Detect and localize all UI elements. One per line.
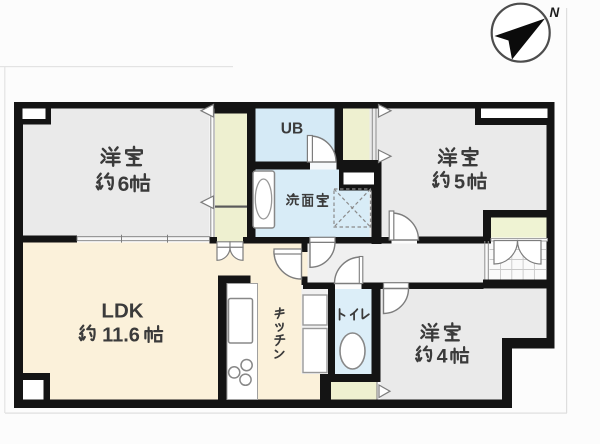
svg-text:N: N <box>550 5 560 20</box>
svg-text:5: 5 <box>454 172 465 194</box>
svg-text:4: 4 <box>437 346 448 368</box>
svg-text:6: 6 <box>118 173 130 196</box>
svg-text:11.6: 11.6 <box>102 325 140 347</box>
svg-text:LDK: LDK <box>101 300 143 323</box>
svg-text:UB: UB <box>281 121 303 138</box>
